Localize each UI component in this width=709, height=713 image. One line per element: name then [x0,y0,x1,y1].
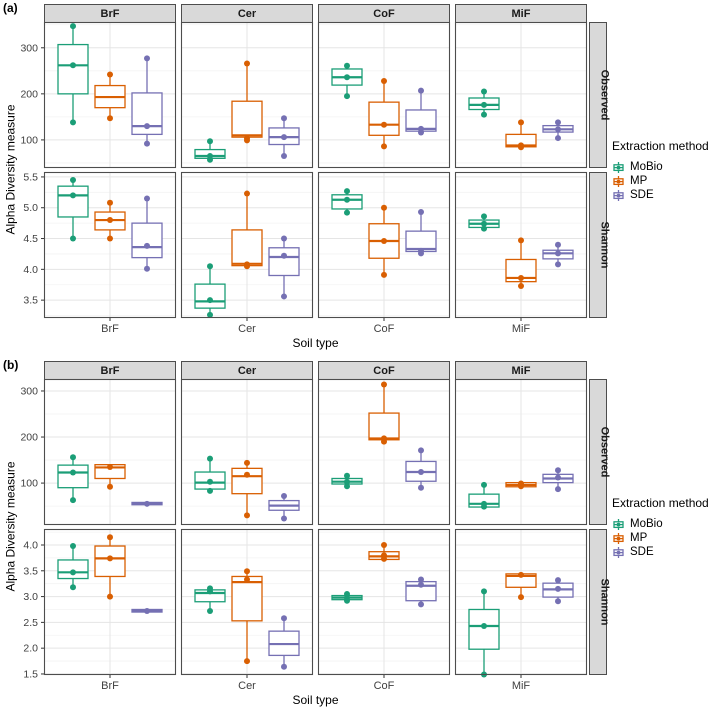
data-point [344,473,350,479]
y-tick-label: 2.0 [23,643,38,655]
facet-strip-label: Shannon [599,221,611,268]
data-point [418,485,424,491]
data-point [518,144,524,150]
legend-entry-label: SDE [630,189,654,201]
facet-plot-a: BrFCerCoFMiFObserved100200300Shannon3.54… [0,0,709,356]
data-point [244,60,250,66]
data-point [107,236,113,242]
data-point [70,569,76,575]
facet-strip-label: Cer [238,8,257,20]
y-tick-label: 300 [20,42,38,54]
data-point [281,115,287,121]
data-point [70,23,76,29]
data-point [70,584,76,590]
legend-entry-label: MoBio [630,518,663,530]
data-point [481,112,487,118]
legend-entry-label: MP [630,175,647,187]
data-point [207,608,213,614]
data-point [281,293,287,299]
data-point [244,577,250,583]
data-point [70,543,76,549]
data-point [207,588,213,594]
data-point [107,217,113,223]
legend: Extraction method MoBioMPSDE [612,139,709,202]
facet-strip-label: MiF [512,365,531,377]
data-point [70,469,76,475]
data-point [555,261,561,267]
data-point [244,512,250,518]
facet-plot-b: BrFCerCoFMiFObserved100200300Shannon1.52… [0,357,709,713]
data-point [381,542,387,548]
legend-entry-label: SDE [630,546,654,558]
data-point [481,102,487,108]
legend-key-boxplot-icon [612,532,625,545]
data-point [518,483,524,489]
data-point [481,89,487,95]
data-point [144,243,150,249]
data-point [418,88,424,94]
data-point [481,623,487,629]
x-tick-label: MiF [512,680,531,692]
y-tick-label: 5.5 [23,171,38,183]
data-point [107,534,113,540]
data-point [244,263,250,269]
x-tick-label: BrF [101,323,119,335]
data-point [344,93,350,99]
data-point [518,275,524,281]
data-point [344,598,350,604]
legend-title: Extraction method [612,139,709,153]
data-point [418,577,424,583]
x-tick-label: CoF [374,680,395,692]
box-iqr [132,223,162,257]
data-point [418,209,424,215]
data-point [344,63,350,69]
figure-panel-b: (b) Alpha Diversity measure BrFCerCoFMiF… [0,357,709,713]
legend-key-boxplot-icon [612,161,625,174]
data-point [381,205,387,211]
legend-entries: MoBioMPSDE [612,517,709,559]
facet-strip-label: Observed [599,427,611,478]
y-tick-label: 5.0 [23,202,38,214]
data-point [144,501,150,507]
data-point [555,242,561,248]
data-point [418,469,424,475]
data-point [481,226,487,232]
data-point [281,153,287,159]
box-iqr [469,609,499,649]
y-tick-label: 100 [20,134,38,146]
data-point [144,141,150,147]
data-point [418,582,424,588]
data-point [381,78,387,84]
data-point [555,250,561,256]
x-tick-label: MiF [512,323,531,335]
data-point [381,439,387,445]
legend-entry-sde: SDE [612,545,709,559]
y-tick-label: 4.0 [23,264,38,276]
data-point [381,556,387,562]
y-tick-label: 4.0 [23,539,38,551]
data-point [555,598,561,604]
data-point [70,497,76,503]
y-tick-label: 2.5 [23,617,38,629]
data-point [70,62,76,68]
legend-entries: MoBioMPSDE [612,160,709,202]
data-point [381,272,387,278]
data-point [281,236,287,242]
legend-key-boxplot-icon [612,546,625,559]
legend-key-boxplot-icon [612,175,625,188]
y-tick-label: 300 [20,385,38,397]
y-tick-label: 3.5 [23,565,38,577]
data-point [418,250,424,256]
data-point [381,382,387,388]
data-point [418,130,424,136]
data-point [555,577,561,583]
data-point [281,134,287,140]
data-point [207,138,213,144]
data-point [555,126,561,132]
data-point [107,464,113,470]
data-point [555,486,561,492]
legend-title: Extraction method [612,496,709,510]
data-point [107,555,113,561]
y-tick-label: 100 [20,478,38,490]
data-point [381,238,387,244]
box-iqr [58,186,88,217]
box-iqr [195,284,225,308]
facet-strip-label: MiF [512,8,531,20]
x-tick-label: BrF [101,680,119,692]
x-tick-label: CoF [374,323,395,335]
box-iqr [58,45,88,94]
legend-entry-label: MP [630,532,647,544]
data-point [281,615,287,621]
data-point [70,119,76,125]
data-point [107,72,113,78]
data-point [555,586,561,592]
data-point [244,137,250,143]
data-point [244,191,250,197]
legend-entry-mp: MP [612,531,709,545]
y-tick-label: 200 [20,432,38,444]
data-point [70,177,76,183]
x-tick-label: Cer [238,323,256,335]
facet-strip-label: CoF [373,365,395,377]
y-tick-label: 3.0 [23,591,38,603]
data-point [107,200,113,206]
data-point [244,472,250,478]
data-point [144,195,150,201]
data-point [481,213,487,219]
box-iqr [232,230,262,266]
data-point [207,263,213,269]
data-point [344,210,350,216]
facet-strip-label: CoF [373,8,395,20]
facet-strip-label: Cer [238,365,257,377]
data-point [344,188,350,194]
x-axis-title: Soil type [44,693,587,707]
data-point [107,115,113,121]
y-tick-label: 1.5 [23,668,38,680]
legend-entry-sde: SDE [612,188,709,202]
legend-entry-mobio: MoBio [612,517,709,531]
data-point [244,568,250,574]
y-tick-label: 200 [20,88,38,100]
data-point [481,588,487,594]
data-point [207,456,213,462]
data-point [281,493,287,499]
figure-panel-a: (a) Alpha Diversity measure BrFCerCoFMiF… [0,0,709,356]
data-point [281,664,287,670]
legend-entry-mp: MP [612,174,709,188]
y-tick-label: 3.5 [23,295,38,307]
data-point [555,135,561,141]
data-point [381,122,387,128]
box-iqr [369,102,399,135]
data-point [518,572,524,578]
data-point [144,123,150,129]
legend-key-boxplot-icon [612,518,625,531]
facet-strip-label: Shannon [599,578,611,625]
data-point [281,253,287,259]
data-point [481,504,487,510]
data-point [144,608,150,614]
data-point [418,601,424,607]
box-iqr [58,560,88,579]
data-point [70,192,76,198]
data-point [207,297,213,303]
data-point [207,157,213,163]
data-point [555,119,561,125]
box-iqr [58,465,88,488]
data-point [381,143,387,149]
data-point [107,594,113,600]
data-point [70,454,76,460]
data-point [344,74,350,80]
box-iqr [232,101,262,137]
data-point [144,55,150,61]
legend-key-boxplot-icon [612,189,625,202]
data-point [555,467,561,473]
data-point [481,482,487,488]
data-point [555,475,561,481]
legend: Extraction method MoBioMPSDE [612,496,709,559]
data-point [518,237,524,243]
facet-strip-label: Observed [599,70,611,121]
data-point [518,119,524,125]
y-tick-label: 4.5 [23,233,38,245]
legend-entry-label: MoBio [630,161,663,173]
data-point [344,197,350,203]
box-iqr [269,248,299,276]
data-point [207,488,213,494]
x-tick-label: Cer [238,680,256,692]
data-point [144,266,150,272]
data-point [344,483,350,489]
x-axis-title: Soil type [44,336,587,350]
facet-strip-label: BrF [101,8,120,20]
data-point [107,484,113,490]
data-point [518,283,524,289]
data-point [244,658,250,664]
facet-strip-label: BrF [101,365,120,377]
data-point [70,236,76,242]
data-point [244,460,250,466]
data-point [418,447,424,453]
data-point [207,479,213,485]
data-point [518,594,524,600]
data-point [281,516,287,522]
legend-entry-mobio: MoBio [612,160,709,174]
